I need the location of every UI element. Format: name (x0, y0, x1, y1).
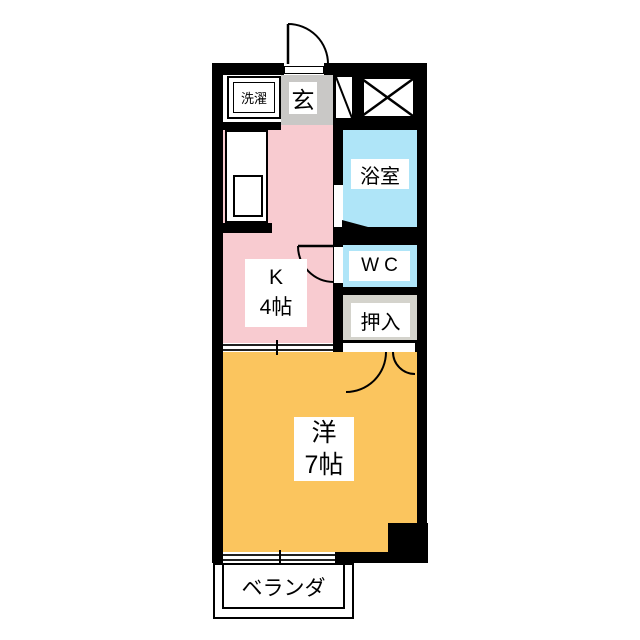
plan-linework (0, 0, 640, 640)
closet-label: 押入 (361, 306, 401, 335)
kitchen-label: K (269, 263, 283, 293)
main-room-label-box: 洋 7帖 (294, 417, 354, 481)
kitchen-label-box: K 4帖 (245, 259, 307, 327)
main-room-label: 洋 (311, 417, 336, 450)
toilet-label-box: WC (349, 251, 410, 281)
balcony-label-box: ベランダ (224, 570, 343, 604)
bath-label-box: 浴室 (351, 159, 409, 189)
entrance-door-swing (288, 24, 328, 64)
main-room-size: 7帖 (305, 449, 344, 482)
entrance-label-box: 玄 (289, 82, 317, 114)
laundry-box: 洗濯 (227, 76, 281, 119)
toilet-label: WC (361, 255, 403, 277)
closet-door-swing-large (346, 352, 386, 392)
laundry-label-box: 洗濯 (233, 82, 275, 113)
balcony-label: ベランダ (242, 572, 326, 602)
entrance-label: 玄 (292, 81, 315, 115)
kitchen-size: 4帖 (260, 293, 293, 323)
bath-door-wedge (342, 220, 368, 231)
floor-plan: 洗濯 玄 浴室 WC 押入 K 4帖 洋 7帖 ベランダ (0, 0, 640, 640)
closet-door-swing-small (393, 352, 415, 374)
bath-label: 浴室 (360, 160, 400, 189)
shoe-cabinet-diagonal (336, 77, 352, 118)
laundry-label: 洗濯 (241, 88, 267, 107)
closet-label-box: 押入 (351, 303, 410, 337)
